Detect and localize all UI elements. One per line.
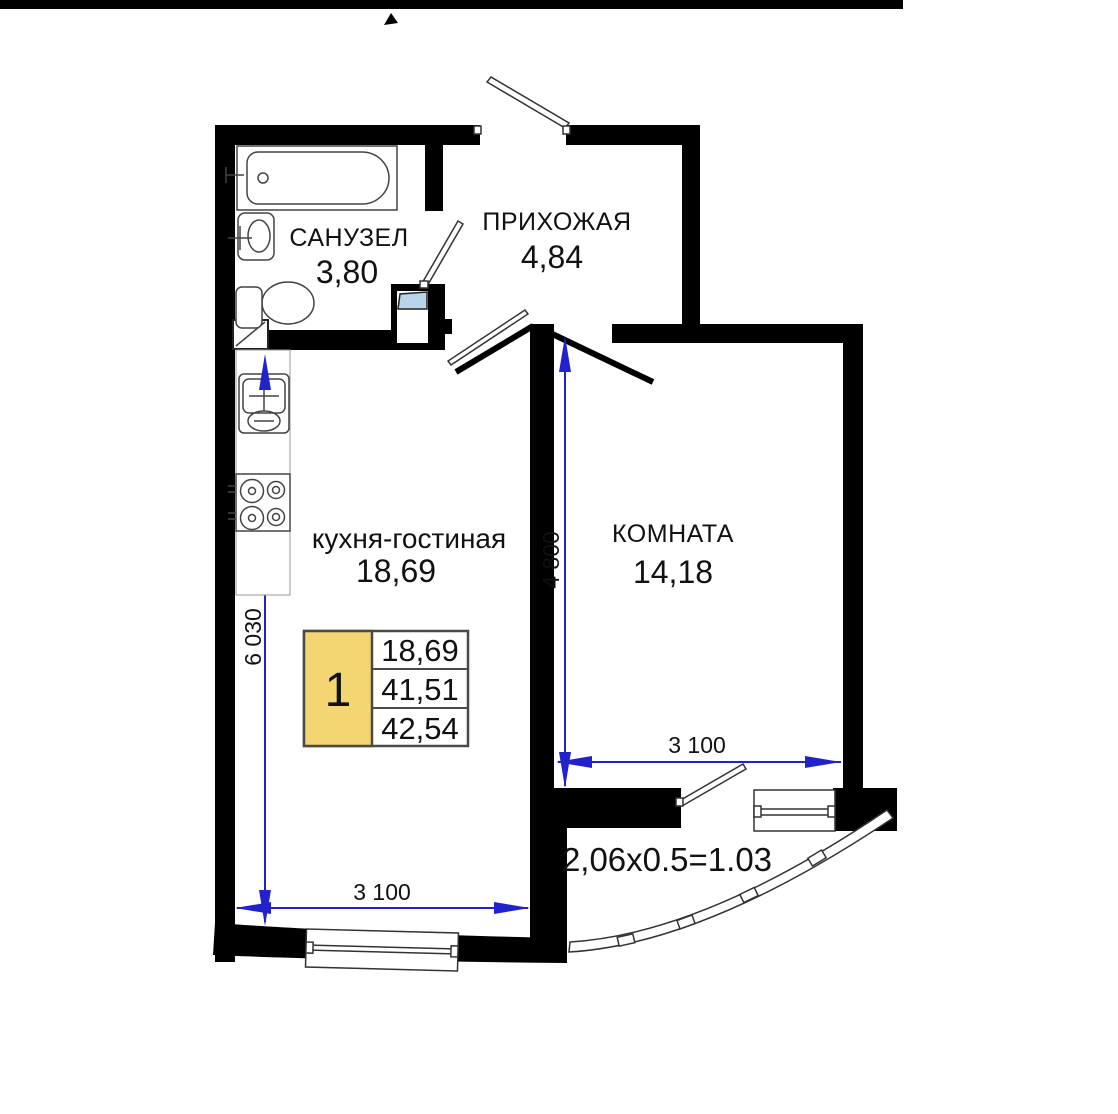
toilet-bowl [262,282,314,324]
wall-top-left [215,125,480,145]
dim-label-room-height: 4 800 [538,531,564,589]
wall-hallway-right [682,145,700,343]
floor-plan-svg: 6 030 4 800 3 100 3 100 САНУЗЕЛ 3,80 ПРИ… [0,0,1118,1114]
window2-cap-left [306,942,313,953]
legend-living-area: 18,69 [381,633,459,668]
shaft-block-tab [443,319,452,334]
toilet-tank [236,287,262,328]
bathtub-outline [237,146,397,210]
legend-total-area: 42,54 [381,711,459,746]
toilet [236,282,314,328]
window1-cap-right [828,806,835,817]
window1-frame [754,790,835,831]
window-kitchen-bottom [306,929,459,971]
balcony-door-jamb [676,798,683,806]
wall-bathroom-inner [425,145,443,211]
top-strip [0,0,903,9]
hallway-area: 4,84 [521,239,583,275]
stove [228,474,290,531]
wall-room-right [843,324,863,794]
entrance-door-jamb-left [474,126,481,134]
bathtub [226,146,397,210]
kitchen-living-area: 18,69 [356,553,436,589]
room-area: 14,18 [633,554,713,590]
room-label: КОМНАТА [612,520,734,548]
dim-label-room-width: 3 100 [668,732,726,758]
wall-left-outer [215,125,235,962]
wall-room-top [612,324,863,343]
bathroom-label: САНУЗЕЛ [289,224,408,252]
legend-flat-number: 1 [325,664,352,717]
window-room-bottom [754,790,835,831]
balcony-area-formula: 2,06x0.5=1.03 [562,841,772,878]
window1-cap-left [754,806,761,817]
kitchen-living-label: кухня-гостиная [312,523,506,554]
shaft-damper-flap [398,292,427,309]
window2-cap-right [451,946,458,957]
floor-plan-page: 6 030 4 800 3 100 3 100 САНУЗЕЛ 3,80 ПРИ… [0,0,1118,1114]
bathroom-door-jamb [420,281,428,288]
vent-shaft-hallway [391,284,452,350]
legend-table: 1 18,69 41,51 42,54 [304,631,468,746]
dim-label-kitchen-width: 3 100 [353,879,411,905]
entrance-door-jamb-right [563,126,570,134]
bathroom-area: 3,80 [316,254,378,290]
hallway-label: ПРИХОЖАЯ [482,208,631,236]
wall-top-hallway [566,125,700,145]
legend-apartment-area: 41,51 [381,672,459,707]
dim-label-kitchen-height: 6 030 [240,608,266,666]
